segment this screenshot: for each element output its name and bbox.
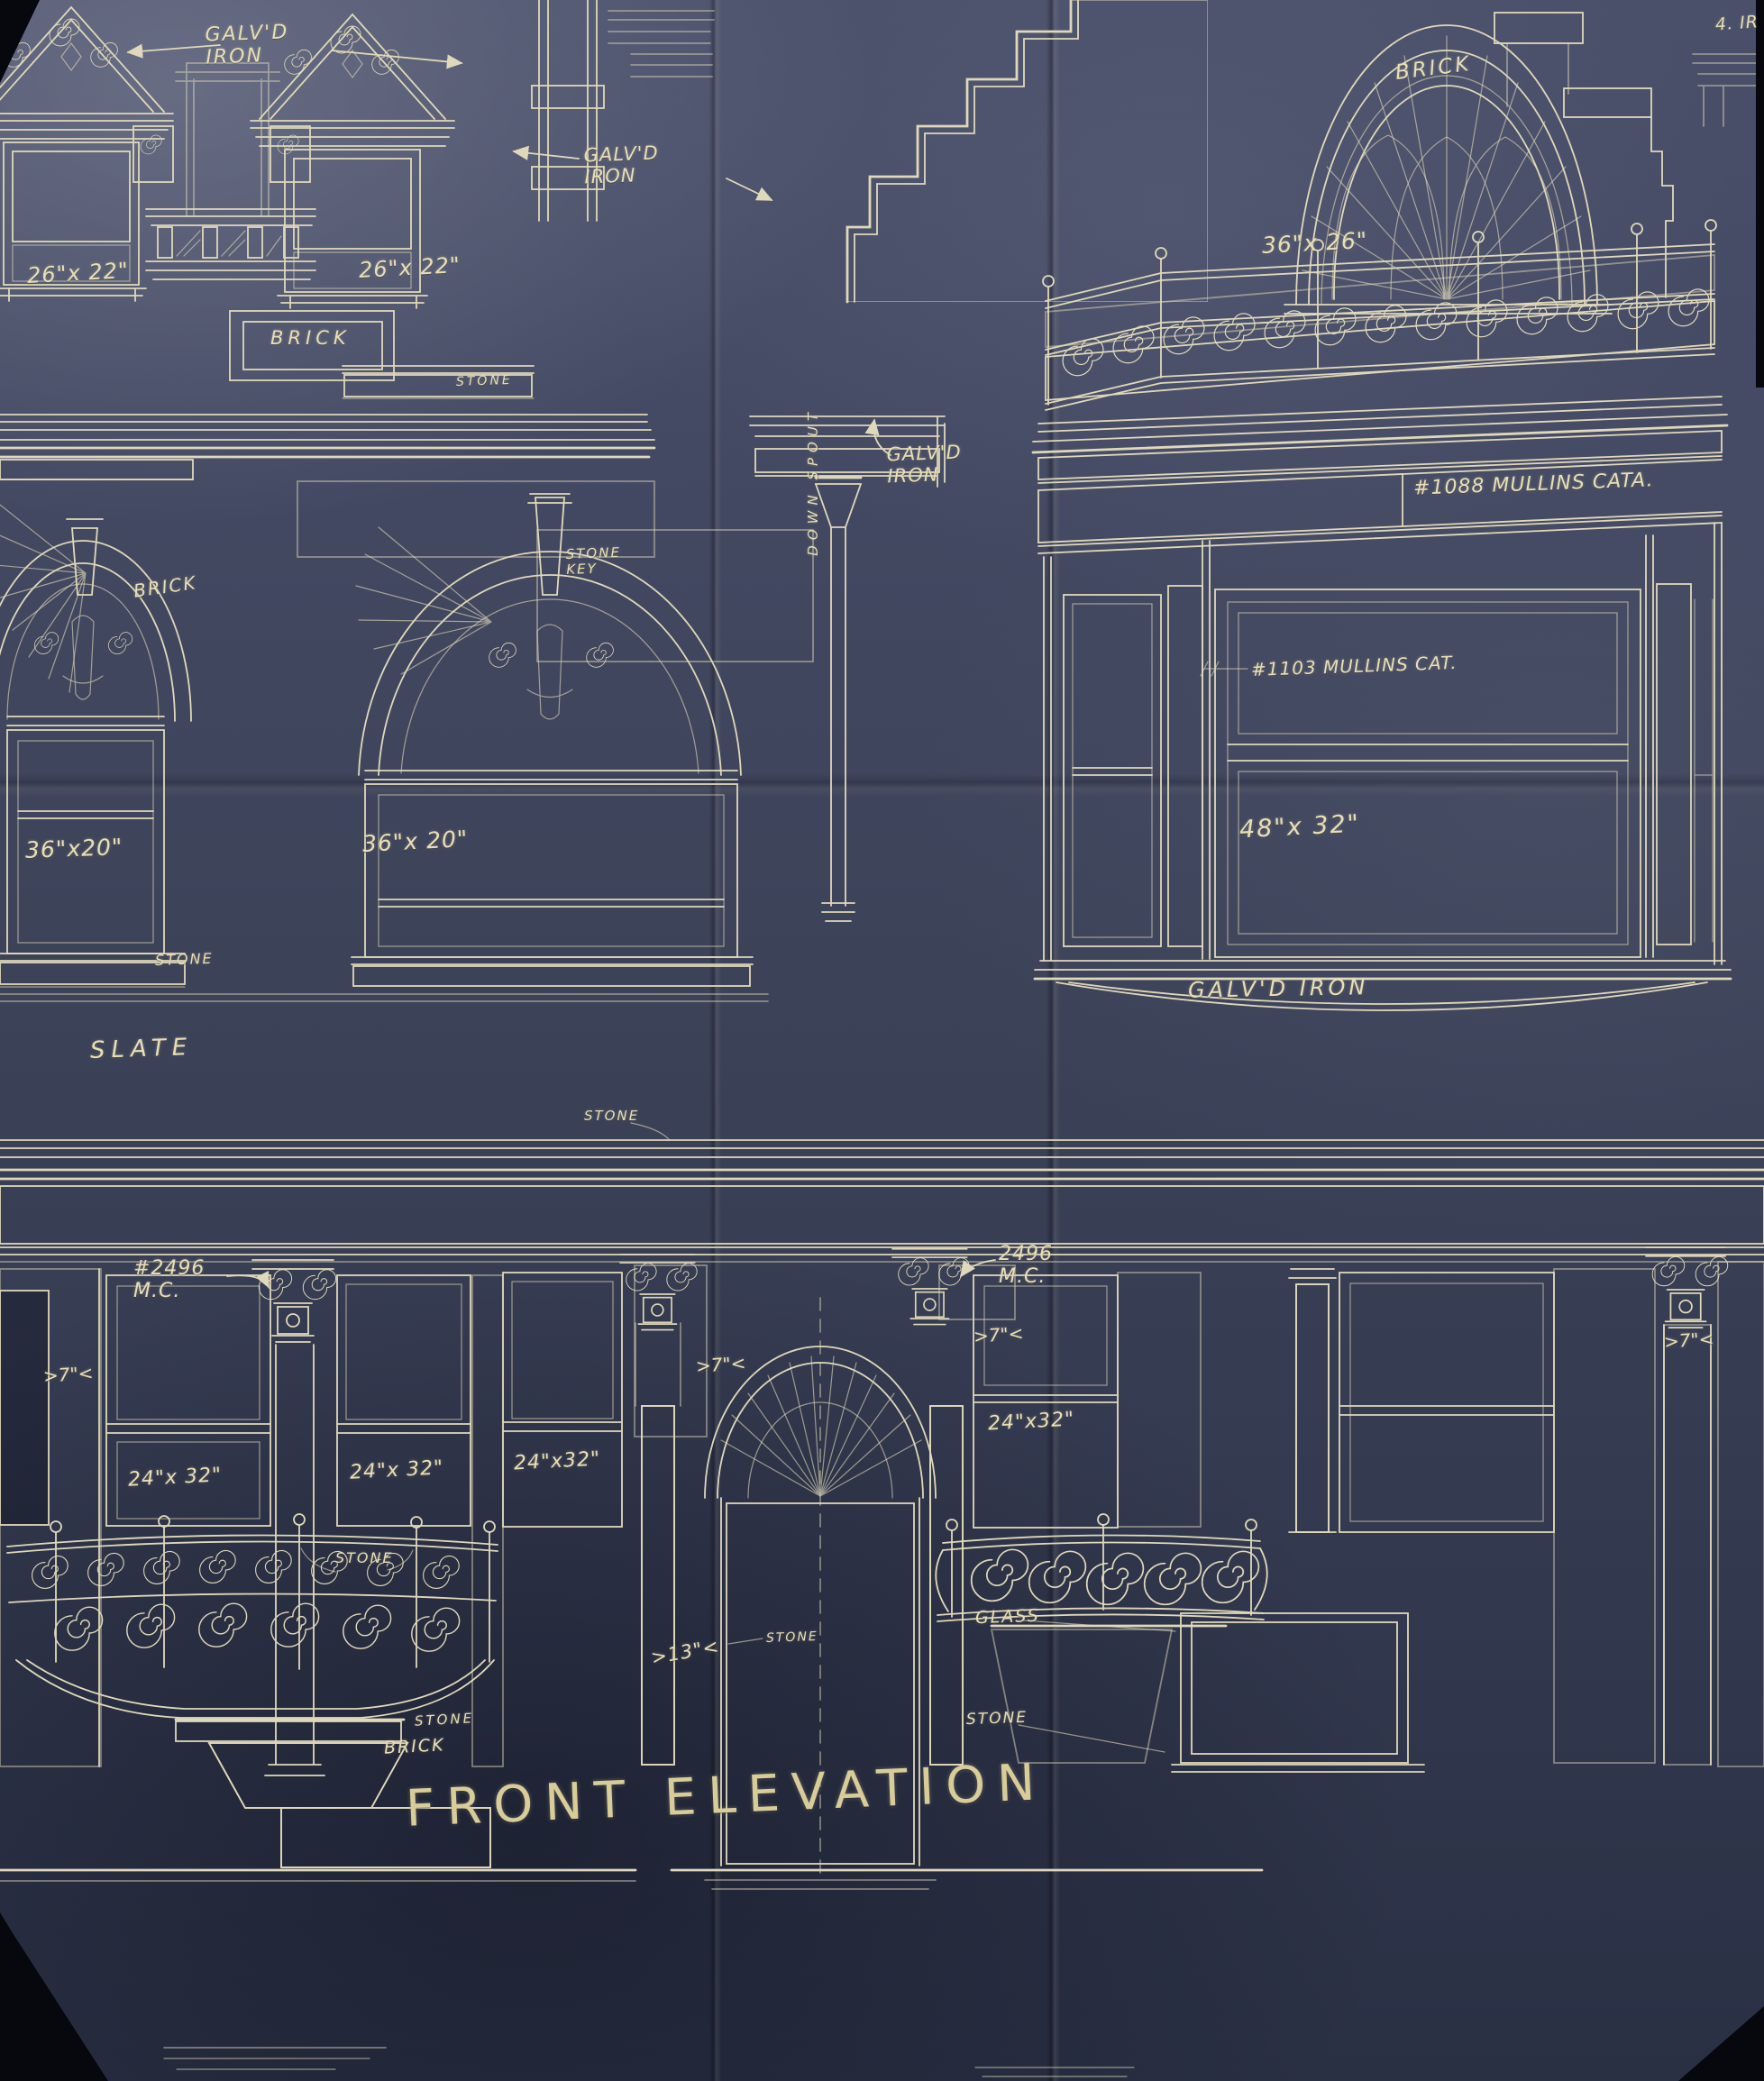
stone-balcony-left: STONE — [335, 1550, 394, 1566]
stone-corbel-left: STONE — [415, 1711, 475, 1729]
mc-2496-left: #2496 M.C. — [133, 1258, 205, 1302]
brick-panel-and-shelf — [146, 209, 534, 398]
galvd-iron-gable: GALV'D IRON — [583, 143, 660, 188]
second-floor-cornice — [0, 415, 945, 557]
main-cornice — [0, 1140, 1764, 1262]
galvd-iron-apron: GALV'D IRON — [1188, 975, 1369, 1002]
galvd-iron-bay-cornice: GALV'D IRON — [886, 443, 963, 488]
chimneys — [1494, 13, 1764, 297]
dim-24x32-c: 24"x32" — [513, 1448, 600, 1475]
dim-7-far-left: >7"< — [42, 1363, 94, 1386]
dim-26x22-left: 26"x 22" — [26, 259, 129, 288]
dim-7-far-right: >7"< — [1663, 1328, 1714, 1352]
glass: GLASS — [975, 1607, 1040, 1629]
dim-7-door-right: >7"< — [973, 1323, 1024, 1346]
dim-36x20-left: 36"x20" — [25, 835, 123, 863]
stone-entry: STONE — [584, 1109, 639, 1124]
stone-upper-sill: STONE — [456, 374, 513, 390]
dim-24x32-d: 24"x32" — [987, 1409, 1074, 1436]
down-spout: DOWN SPOUT — [806, 407, 821, 556]
dim-26x22-right: 26"x 22" — [358, 253, 461, 283]
brick-upper-panel: BRICK — [270, 328, 351, 350]
arched-windows — [0, 494, 768, 1001]
stone-key: STONE KEY — [565, 545, 621, 578]
stone-door: STONE — [766, 1630, 818, 1647]
label-4-iron: 4. IR — [1714, 13, 1759, 35]
dim-7-door-left: >7"< — [695, 1353, 746, 1376]
galvd-iron-top-left: GALV'D IRON — [205, 22, 289, 68]
blueprint-photo: GALV'D IRON26"x 22"26"x 22"BRICKSTONEGAL… — [0, 0, 1764, 2081]
stone-sill-left: STONE — [155, 951, 214, 969]
stepped-gable — [847, 0, 1208, 302]
slate: SLATE — [90, 1035, 194, 1064]
mc-2496-right: 2496 M.C. — [999, 1244, 1053, 1288]
middle-chimney — [532, 0, 714, 221]
bay-window — [1033, 220, 1731, 1010]
base-marks — [164, 2048, 1134, 2076]
stone-base-right: STONE — [966, 1710, 1028, 1729]
brick-corbel-left: BRICK — [383, 1736, 445, 1758]
